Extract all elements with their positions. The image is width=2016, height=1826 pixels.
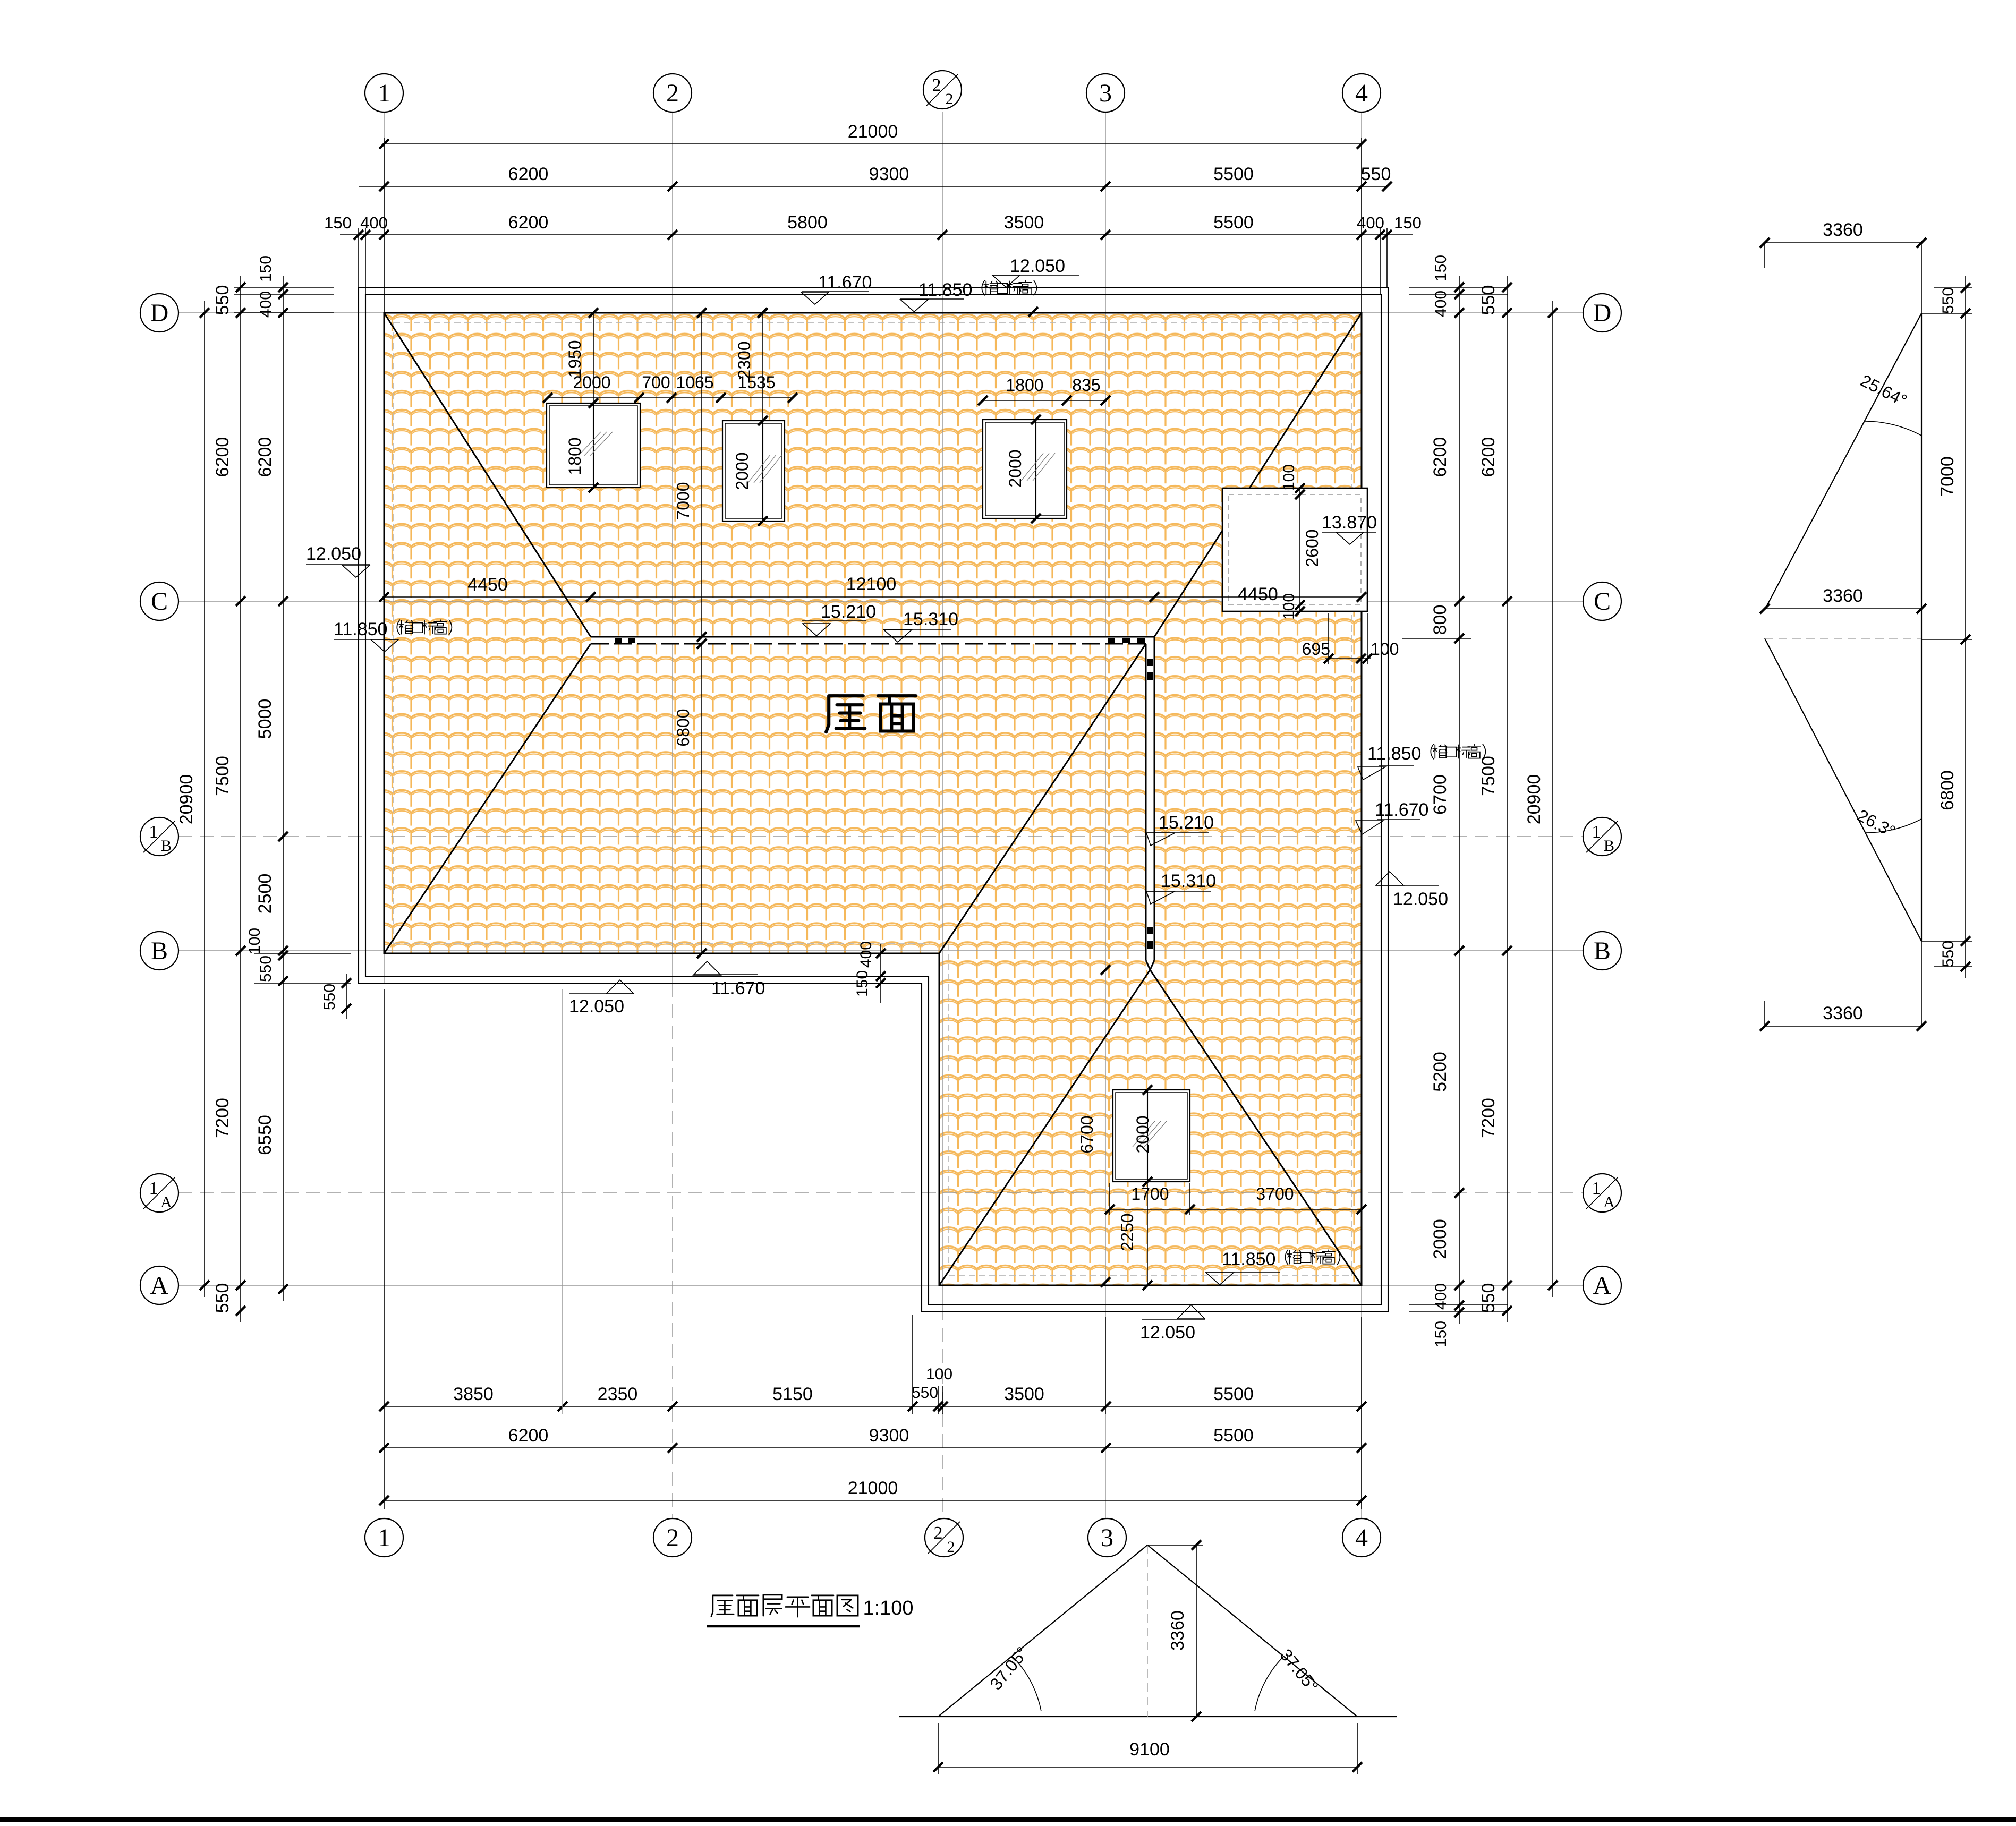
svg-text:2250: 2250 [1118,1213,1137,1251]
svg-text:7500: 7500 [212,756,233,796]
svg-text:1700: 1700 [1131,1184,1169,1204]
svg-text:D: D [150,299,169,327]
svg-text:5200: 5200 [1430,1052,1450,1092]
svg-text:550: 550 [912,1384,938,1402]
svg-text:400: 400 [857,941,875,968]
svg-text:6200: 6200 [508,1426,549,1446]
svg-text:3: 3 [1099,79,1112,107]
svg-text:6800: 6800 [674,709,693,746]
svg-text:550: 550 [321,984,338,1010]
svg-text:1800: 1800 [1006,376,1043,395]
svg-text:100: 100 [246,928,263,954]
svg-text:400: 400 [1432,291,1450,317]
svg-text:550: 550 [1478,285,1499,315]
svg-text:100: 100 [1371,639,1399,659]
svg-text:550: 550 [1940,287,1957,314]
svg-text:5500: 5500 [1213,212,1254,233]
svg-text:1: 1 [149,822,158,842]
svg-text:12.050: 12.050 [1393,889,1448,909]
svg-text:3360: 3360 [1823,1003,1863,1023]
svg-text:1: 1 [378,79,390,107]
svg-text:5800: 5800 [787,212,828,233]
svg-text:B: B [161,837,172,855]
svg-text:2000: 2000 [733,452,752,490]
svg-text:2000: 2000 [1006,449,1025,487]
svg-text:3: 3 [1101,1524,1113,1552]
svg-text:3360: 3360 [1823,586,1863,606]
svg-text:21000: 21000 [848,1478,898,1498]
svg-text:4: 4 [1355,1524,1368,1552]
svg-text:2: 2 [934,1523,943,1543]
svg-text:9100: 9100 [1129,1739,1170,1760]
svg-text:15.310: 15.310 [1161,871,1216,891]
svg-text:11.670: 11.670 [1375,800,1428,820]
svg-text:7000: 7000 [674,482,693,519]
svg-text:1950: 1950 [565,340,584,378]
svg-text:4450: 4450 [467,575,508,595]
svg-text:1800: 1800 [565,437,584,475]
svg-text:6700: 6700 [1077,1115,1096,1153]
svg-text:1: 1 [149,1179,158,1198]
svg-text:2: 2 [666,1524,679,1552]
svg-text:7000: 7000 [1937,456,1958,497]
svg-text:2: 2 [946,90,954,108]
svg-text:7500: 7500 [1478,756,1499,796]
svg-text:800: 800 [1430,605,1450,635]
svg-text:6200: 6200 [508,212,549,233]
svg-text:5500: 5500 [1213,1384,1254,1404]
svg-text:550: 550 [1478,1283,1499,1313]
svg-text:2300: 2300 [735,341,754,379]
svg-text:13.870: 13.870 [1322,513,1377,533]
svg-text:6200: 6200 [212,437,233,477]
svg-text:3850: 3850 [453,1384,494,1404]
svg-text:150: 150 [324,214,352,232]
svg-text:12100: 12100 [846,574,897,594]
svg-text:6200: 6200 [255,437,275,477]
svg-text:100: 100 [1280,593,1298,620]
svg-text:5500: 5500 [1213,1426,1254,1446]
svg-text:7200: 7200 [212,1098,233,1138]
svg-text:550: 550 [1361,164,1391,184]
svg-text:12.050: 12.050 [1140,1322,1195,1343]
svg-text:6550: 6550 [255,1115,275,1155]
svg-text:100: 100 [926,1366,952,1383]
svg-text:2: 2 [666,79,679,107]
svg-text:150: 150 [854,970,871,997]
svg-text:11.850: 11.850 [918,280,972,300]
svg-text:2000: 2000 [1133,1115,1152,1153]
svg-text:400: 400 [257,291,275,318]
svg-text:400: 400 [1432,1283,1450,1310]
svg-text:5150: 5150 [772,1384,813,1404]
svg-text:4: 4 [1355,79,1368,107]
svg-text:B: B [1594,937,1611,965]
svg-text:21000: 21000 [848,122,898,142]
svg-text:100: 100 [1280,464,1298,491]
svg-text:B: B [151,937,168,965]
svg-text:5000: 5000 [255,699,275,739]
svg-text:12.050: 12.050 [306,544,361,564]
svg-text:3500: 3500 [1004,212,1044,233]
svg-text:150: 150 [1432,255,1450,281]
svg-text:4450: 4450 [1238,584,1278,604]
svg-text:2: 2 [947,1538,955,1556]
svg-text:550: 550 [1940,941,1957,967]
svg-text:11.850: 11.850 [1367,744,1421,764]
svg-text:C: C [151,587,168,616]
svg-text:6800: 6800 [1937,770,1958,810]
svg-text:1065: 1065 [676,373,713,392]
svg-text:15.210: 15.210 [1159,813,1214,833]
svg-text:2: 2 [932,75,941,95]
svg-text:1: 1 [378,1524,390,1552]
svg-text:A: A [1593,1272,1612,1300]
svg-text:5500: 5500 [1213,164,1254,184]
svg-text:7200: 7200 [1478,1098,1499,1138]
svg-text:2000: 2000 [1430,1219,1450,1259]
svg-text:D: D [1593,299,1612,327]
svg-text:11.850: 11.850 [334,619,387,639]
svg-text:2600: 2600 [1303,529,1322,567]
svg-text:9300: 9300 [869,164,909,184]
svg-text:2350: 2350 [598,1384,638,1404]
svg-text:3500: 3500 [1004,1384,1044,1404]
svg-text:550: 550 [212,285,233,315]
svg-text:A: A [160,1193,172,1211]
svg-text:11.670: 11.670 [711,978,765,999]
svg-text:400: 400 [360,214,388,232]
svg-text:1: 1 [1592,822,1601,842]
svg-text:1:100: 1:100 [863,1597,913,1619]
svg-text:C: C [1594,587,1611,616]
svg-text:550: 550 [257,955,275,982]
svg-text:150: 150 [1394,214,1422,232]
svg-text:3700: 3700 [1256,1184,1294,1204]
svg-text:15.310: 15.310 [903,609,958,629]
svg-text:695: 695 [1302,639,1330,659]
svg-text:3360: 3360 [1823,220,1863,240]
svg-text:700: 700 [642,373,670,392]
svg-text:150: 150 [257,255,275,282]
svg-text:11.850: 11.850 [1222,1249,1275,1269]
svg-text:6200: 6200 [508,164,549,184]
svg-text:1: 1 [1592,1179,1601,1198]
svg-text:12.050: 12.050 [1010,256,1065,276]
svg-text:6200: 6200 [1430,437,1450,477]
svg-text:A: A [150,1272,169,1300]
svg-text:6200: 6200 [1478,437,1499,477]
svg-text:3360: 3360 [1168,1610,1188,1651]
svg-text:12.050: 12.050 [569,996,624,1017]
svg-text:B: B [1604,837,1614,855]
svg-text:835: 835 [1072,376,1100,395]
svg-text:9300: 9300 [869,1426,909,1446]
svg-text:11.670: 11.670 [818,272,872,293]
svg-text:15.210: 15.210 [821,602,876,622]
svg-text:20900: 20900 [176,774,197,825]
svg-text:6700: 6700 [1430,774,1450,815]
svg-text:A: A [1603,1193,1615,1211]
svg-text:150: 150 [1432,1321,1450,1347]
svg-text:550: 550 [212,1283,233,1313]
svg-text:20900: 20900 [1524,774,1544,825]
svg-text:2500: 2500 [255,874,275,914]
